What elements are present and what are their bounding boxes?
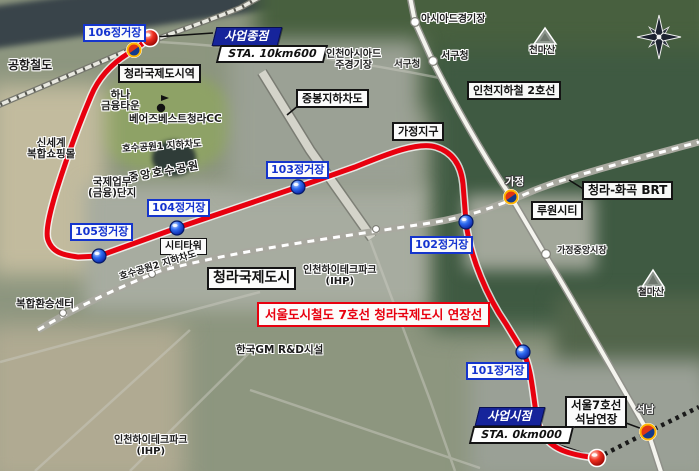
station-label-105: 105정거장 — [70, 223, 133, 241]
station-label-101: 101정거장 — [466, 362, 529, 380]
gm-rnd-label: 한국GM R&D시설 — [236, 345, 323, 356]
incheon2-line-label: 인천지하철 2호선 — [467, 81, 561, 100]
shinsegae-mall-label: 신세계 복합쇼핑몰 — [27, 138, 75, 160]
ibd-line2: (금융)단지 — [88, 188, 136, 199]
hana-financial-town-label: 하나 금융타운 — [101, 90, 140, 112]
seoknam-station-label: 석남 — [636, 406, 654, 417]
station-label-102: 102정거장 — [410, 236, 473, 254]
project-start-sta: STA. 0km000 — [469, 426, 574, 444]
asiad-main-stadium-line1: 인천아시아드 — [326, 50, 381, 61]
gajeong-station-label: 가정 — [505, 177, 524, 188]
gajeong-market-station-label: 가정중앙시장 — [557, 247, 607, 256]
mountain-icon-cheonma — [534, 28, 556, 44]
satellite-route-map: 106정거장 105정거장 104정거장 103정거장 102정거장 101정거… — [0, 0, 699, 471]
project-start-flag: 사업시점 — [475, 407, 546, 426]
seogucheong-station-label: 서구청 — [441, 52, 469, 63]
ihp-south-line2: (IHP) — [114, 447, 188, 458]
gajeong-district-label: 가정지구 — [392, 122, 444, 141]
ihp-label-south: 인천하이테크파크 (IHP) — [114, 436, 188, 457]
station-label-106: 106정거장 — [83, 24, 146, 42]
compass-rose-icon — [637, 15, 681, 59]
transfer-center-label: 복합환승센터 — [16, 299, 74, 310]
jungbong-underpass-label: 중봉지하차도 — [296, 89, 369, 108]
asiad-main-stadium-line2: 주경기장 — [326, 61, 381, 72]
asiad-main-stadium-label: 인천아시아드 주경기장 — [326, 50, 381, 71]
asiad-stadium-station-label: 아시아드경기장 — [421, 15, 485, 26]
shinsegae-line2: 복합쇼핑몰 — [27, 149, 75, 160]
brt-line-label: 청라-화곡 BRT — [582, 181, 673, 200]
line7-extension-banner: 서울도시철도 7호선 청라국제도시 연장선 — [257, 302, 490, 327]
callout-leaders — [154, 33, 645, 456]
airport-rail-label: 공항철도 — [8, 59, 52, 72]
lu1-city-label: 루원시티 — [531, 201, 583, 220]
seoknam-extension-label: 서울7호선 석남연장 — [565, 396, 627, 428]
station-label-104: 104정거장 — [147, 199, 210, 217]
project-end-flag: 사업종점 — [212, 27, 283, 46]
seoknam-extension-line1: 서울7호선 — [571, 398, 621, 412]
mt-cheonma-label: 천마산 — [529, 46, 555, 56]
project-end-sta: STA. 10km600 — [216, 45, 329, 63]
golf-flag-icon — [157, 95, 169, 112]
ihp-south-line1: 인천하이테크파크 — [114, 436, 188, 447]
seoknam-extension-line2: 석남연장 — [571, 412, 621, 426]
ihp-north-line2: (IHP) — [303, 277, 377, 288]
cheongna-station-label: 청라국제도시역 — [118, 64, 201, 83]
ibd-label: 국제업무 (금융)단지 — [88, 177, 136, 199]
route-end-marker-south — [589, 450, 606, 467]
ihp-north-line1: 인천하이테크파크 — [303, 266, 377, 277]
hana-line2: 금융타운 — [101, 101, 140, 112]
mountain-icon-cheolma — [642, 270, 664, 287]
bears-best-cc-label: 베어즈베스트청라CC — [129, 114, 222, 125]
seogucheong-map-label: 서구청 — [394, 60, 420, 70]
ihp-label-north: 인천하이테크파크 (IHP) — [303, 266, 377, 287]
cheongna-city-label: 청라국제도시 — [207, 267, 296, 290]
station-label-103: 103정거장 — [266, 161, 329, 179]
mt-cheolma-label: 철마산 — [638, 288, 664, 298]
